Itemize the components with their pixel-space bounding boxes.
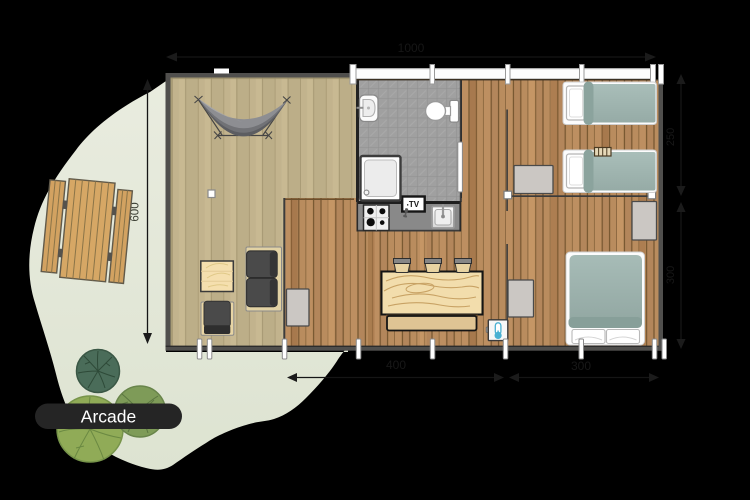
svg-text:1000: 1000 [398,41,425,55]
svg-text:300: 300 [571,359,591,373]
svg-text:TV: TV [409,200,420,209]
svg-text:400: 400 [386,358,406,372]
svg-text:300: 300 [665,266,677,284]
svg-text:Arcade: Arcade [81,407,136,427]
svg-text:250: 250 [665,128,677,146]
